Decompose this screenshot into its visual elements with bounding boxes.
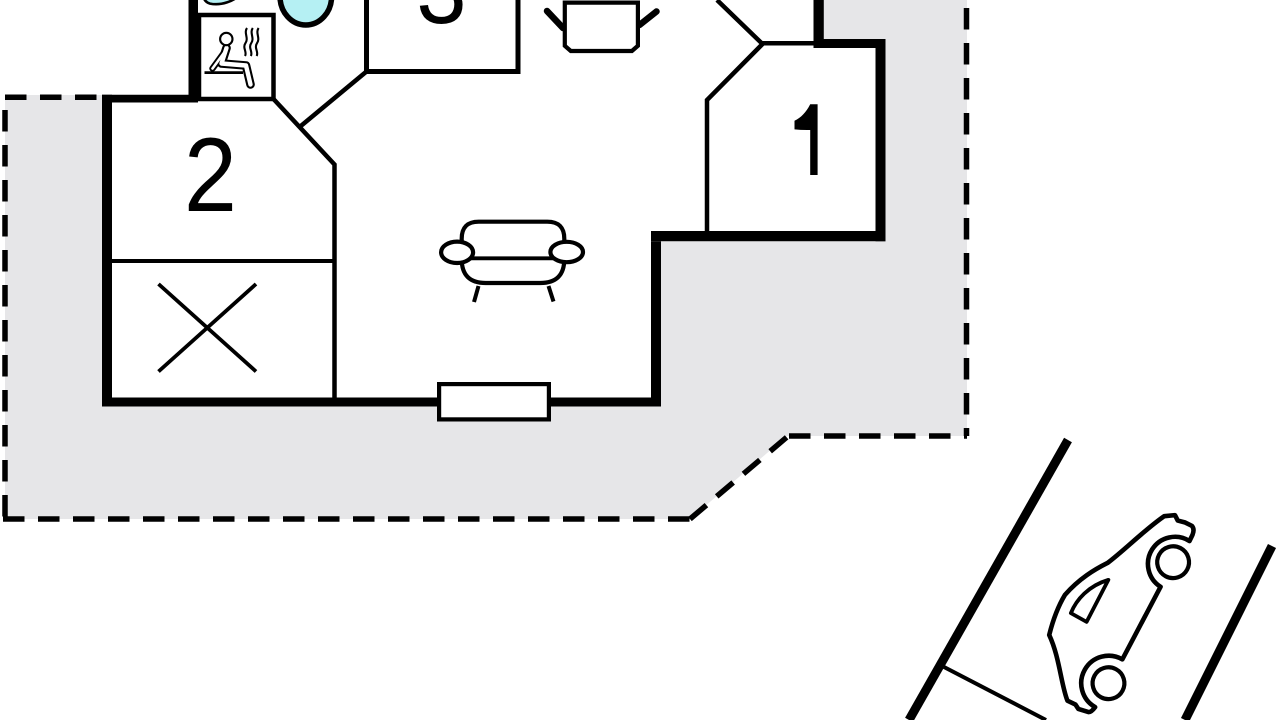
svg-text:2: 2 (184, 118, 237, 234)
svg-text:3: 3 (416, 0, 466, 44)
